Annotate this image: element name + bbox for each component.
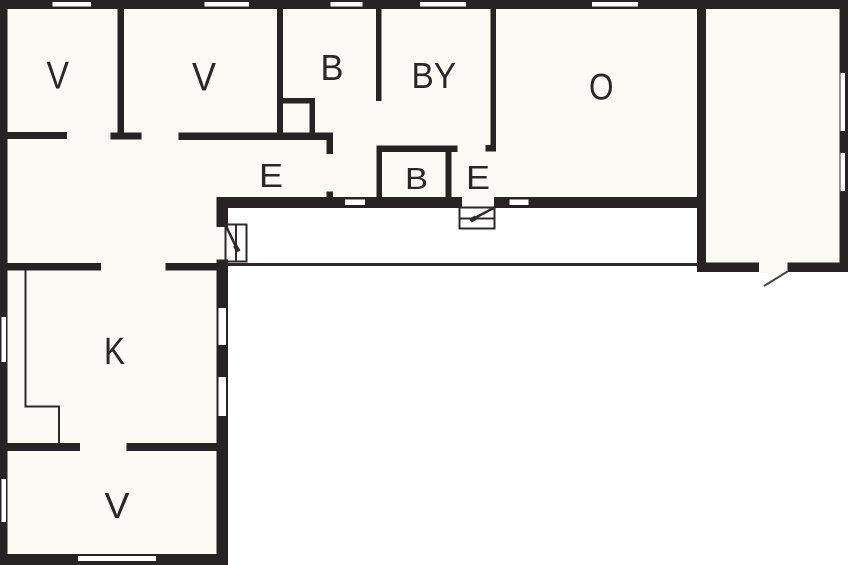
svg-text:B: B bbox=[321, 47, 344, 88]
svg-text:O: O bbox=[589, 67, 614, 108]
svg-text:B: B bbox=[405, 162, 428, 196]
svg-text:E: E bbox=[466, 160, 490, 197]
svg-text:V: V bbox=[47, 55, 70, 98]
svg-text:BY: BY bbox=[412, 55, 457, 96]
svg-text:E: E bbox=[259, 158, 283, 195]
svg-text:K: K bbox=[104, 331, 125, 373]
svg-text:V: V bbox=[192, 56, 216, 100]
svg-text:V: V bbox=[105, 485, 130, 526]
